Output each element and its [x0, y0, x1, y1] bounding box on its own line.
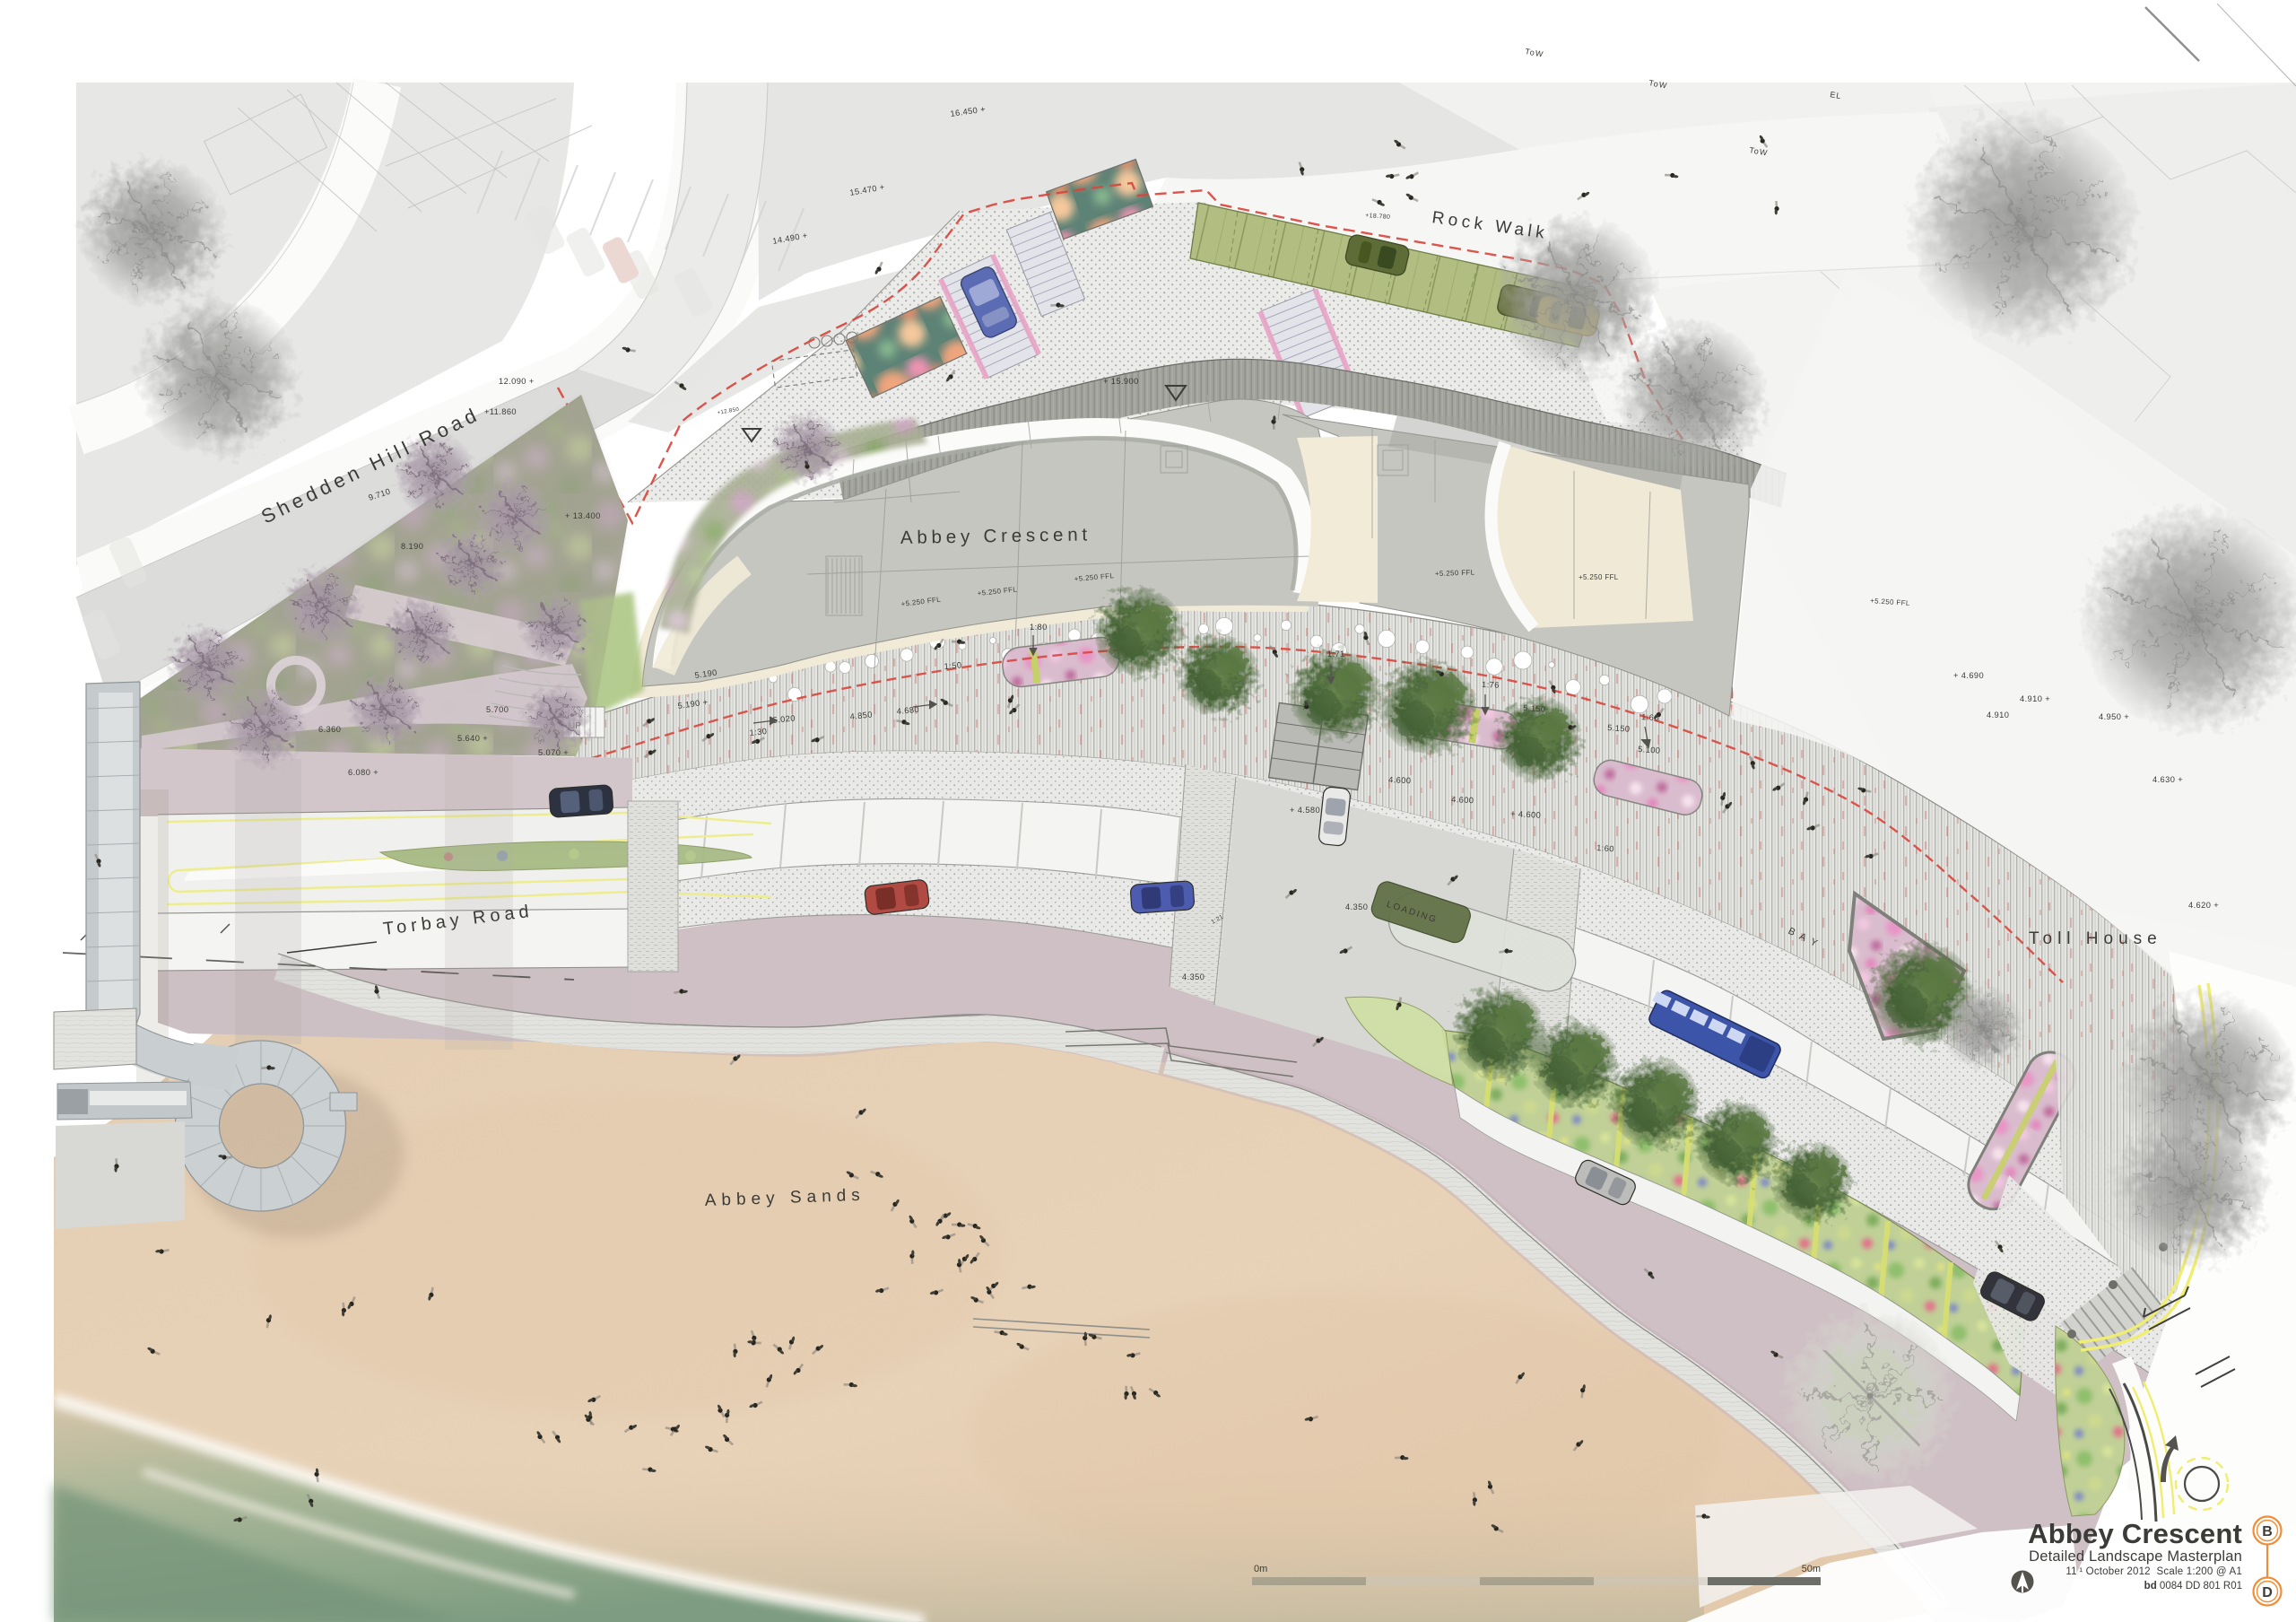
svg-text:1:30: 1:30	[749, 727, 768, 737]
svg-text:+5.250 FFL: +5.250 FFL	[1578, 573, 1619, 581]
svg-text:1:60: 1:60	[1596, 843, 1614, 853]
svg-text:6.080 +: 6.080 +	[348, 768, 378, 777]
svg-text:bd 0084 DD 801 R01: bd 0084 DD 801 R01	[2144, 1581, 2242, 1591]
svg-text:D: D	[2262, 1585, 2273, 1600]
svg-text:+ 4.600: + 4.600	[1510, 809, 1542, 820]
svg-text:11 ¹ October 2012 Scale 1:200: 11 ¹ October 2012 Scale 1:200 @ A1	[2066, 1566, 2242, 1577]
svg-text:Abbey Crescent: Abbey Crescent	[2028, 1518, 2242, 1549]
svg-text:1:60: 1:60	[1641, 712, 1659, 722]
svg-text:5.070 +: 5.070 +	[538, 748, 569, 757]
svg-text:4.600: 4.600	[1451, 795, 1474, 805]
svg-text:5.150: 5.150	[1607, 723, 1631, 734]
svg-text:4.950 +: 4.950 +	[2099, 712, 2129, 721]
svg-text:Abbey Crescent: Abbey Crescent	[900, 524, 1091, 548]
svg-text:4.350: 4.350	[1345, 903, 1368, 911]
svg-text:+ 15.900: + 15.900	[1103, 377, 1139, 386]
svg-text:Toll House: Toll House	[2029, 929, 2162, 948]
svg-text:5.640 +: 5.640 +	[457, 734, 488, 743]
svg-text:4.630 +: 4.630 +	[2152, 775, 2183, 784]
svg-text:Detailed Landscape Masterplan: Detailed Landscape Masterplan	[2029, 1548, 2242, 1565]
svg-text:4.620 +: 4.620 +	[2188, 901, 2219, 910]
svg-text:4.600: 4.600	[1388, 775, 1412, 785]
svg-text:+5.250 FFL: +5.250 FFL	[1435, 568, 1475, 578]
svg-text:5.150: 5.150	[1523, 703, 1546, 714]
svg-text:B: B	[2262, 1524, 2273, 1539]
svg-text:6.360: 6.360	[318, 725, 341, 734]
svg-text:1:80: 1:80	[1030, 623, 1048, 632]
svg-text:4.350: 4.350	[1182, 972, 1205, 981]
svg-text:4.910: 4.910	[1987, 711, 2009, 719]
svg-text:0m: 0m	[1254, 1564, 1267, 1574]
svg-text:4.910 +: 4.910 +	[2020, 694, 2050, 703]
svg-text:+ 4.580: + 4.580	[1290, 806, 1320, 815]
svg-text:+ 4.690: + 4.690	[1953, 671, 1984, 680]
svg-text:+11.860: +11.860	[484, 407, 517, 416]
svg-text:12.090 +: 12.090 +	[499, 377, 535, 386]
svg-text:1:71: 1:71	[1327, 650, 1345, 658]
svg-text:+ 13.400: + 13.400	[565, 511, 601, 520]
svg-text:1:50: 1:50	[944, 660, 961, 671]
svg-text:5.700: 5.700	[486, 705, 509, 714]
svg-text:1:76: 1:76	[1482, 680, 1500, 690]
svg-text:8.190: 8.190	[401, 542, 423, 551]
svg-text:50m: 50m	[1802, 1564, 1821, 1574]
